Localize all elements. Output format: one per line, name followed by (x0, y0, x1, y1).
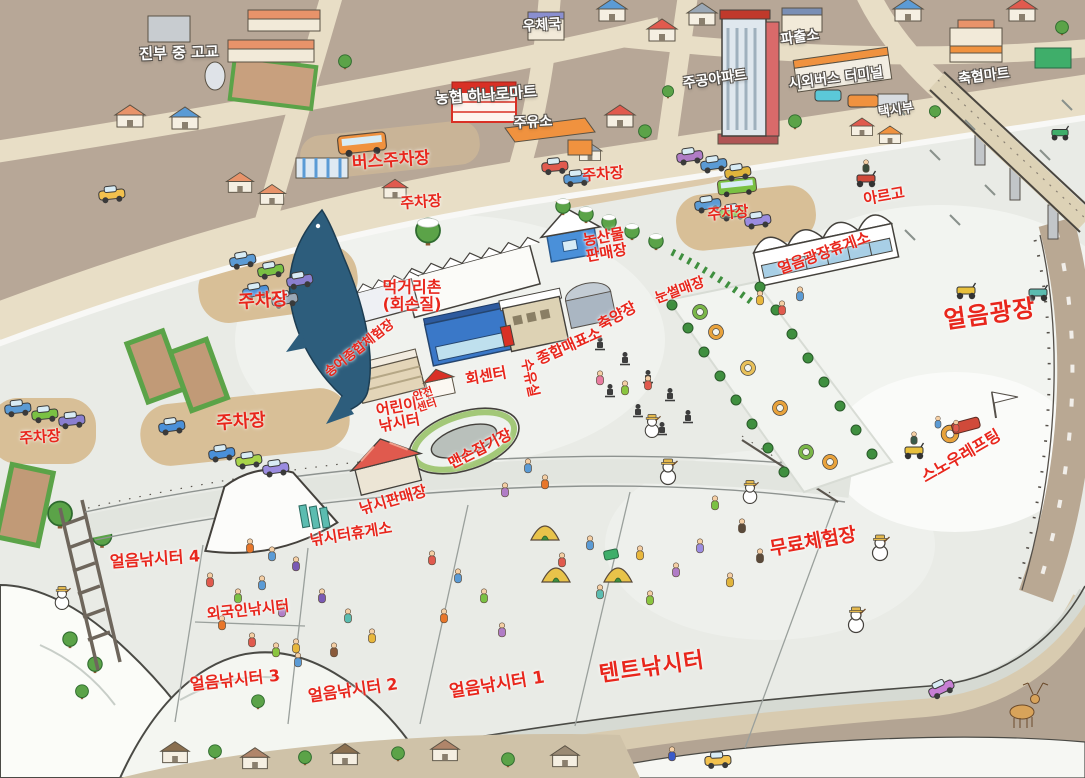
label-gas-station: 주유소 (513, 114, 552, 131)
label-parking-4: 주차장 (238, 290, 289, 313)
label-parking-6: 주차장 (216, 411, 267, 434)
label-post-office: 우체국 (522, 17, 562, 35)
label-parking-1: 주차장 (400, 192, 442, 211)
label-parking-5: 주차장 (19, 427, 61, 446)
label-jinbu-school: 진부 중 고교 (139, 44, 219, 63)
label-farm-market: 농산물판매장 (582, 225, 628, 264)
festival-map: 진부 중 고교 우체국 농협 하나로마트 주유소 파출소 주공아파트 시외버스 … (0, 0, 1085, 778)
label-parking-3: 주차장 (707, 203, 750, 223)
label-parking-2: 주차장 (582, 164, 624, 183)
label-food-village: 먹거리촌(회손질) (383, 279, 442, 314)
